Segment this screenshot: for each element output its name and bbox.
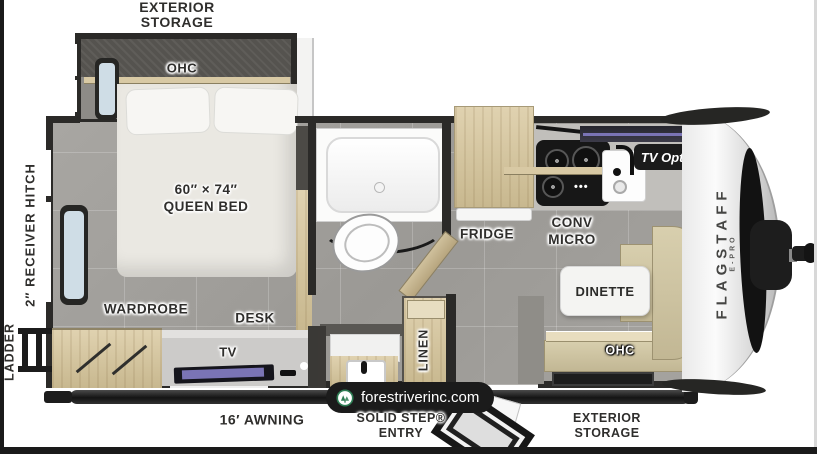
slideout-exterior-panel (297, 38, 314, 122)
tv-remote (280, 370, 296, 376)
pillow-right (213, 87, 299, 136)
linen-label: LINEN (417, 329, 432, 372)
kitchen-wood-rail (504, 167, 616, 175)
cooktop-burner-3 (542, 176, 564, 198)
solid-step-entry-label: SOLID STEP® ENTRY (356, 411, 445, 441)
ohc-bed-label: OHC (167, 61, 197, 76)
fridge-label: FRIDGE (460, 227, 514, 242)
dinette-label: DINETTE (575, 284, 634, 299)
exterior-storage-top-label: EXTERIOR STORAGE (139, 0, 215, 30)
forest-river-logo-icon (336, 389, 354, 407)
solid-step-line1: SOLID STEP® (356, 411, 445, 426)
fridge-cabinet (454, 106, 534, 208)
conv-micro-line2: MICRO (548, 231, 596, 248)
brand-logo-sub: E-PRO (730, 186, 738, 319)
wardrobe-label: WARDROBE (104, 302, 188, 317)
vanity-side-wall (318, 326, 326, 388)
linen-cabinet-top (407, 300, 445, 319)
slideout-window-slot-2 (71, 80, 77, 112)
receiver-hitch-label: 2″ RECEIVER HITCH (23, 163, 38, 307)
bedroom-window-glass (99, 63, 115, 115)
dinette-bench-back (518, 296, 544, 384)
entry-partition-wall (446, 294, 456, 388)
pillow-left (125, 87, 211, 136)
ladder-rung-1 (22, 330, 28, 370)
exterior-storage-top-line2: STORAGE (139, 15, 215, 30)
conv-micro-label: CONV MICRO (548, 214, 596, 248)
frame-edge-bottom (0, 447, 817, 454)
conv-micro-line1: CONV (548, 214, 596, 231)
wardrobe-cabinet (52, 328, 162, 388)
front-window-accent (583, 133, 697, 136)
dinette-table: DINETTE (560, 266, 650, 316)
frame-edge-left (0, 0, 4, 447)
website-text: forestriverinc.com (361, 389, 479, 406)
ohc-dinette-label: OHC (605, 344, 634, 359)
ladder-rung-2 (36, 330, 42, 370)
awning-bracket-left (44, 391, 72, 403)
slideout-window-slot-1 (71, 44, 77, 76)
website-badge: forestriverinc.com (326, 382, 494, 413)
rear-wall-window-slot-1 (45, 150, 51, 196)
exterior-storage-top-line1: EXTERIOR (139, 0, 215, 15)
desk-label: DESK (235, 311, 275, 326)
sink-faucet-base (613, 168, 621, 176)
rear-wall-window-slot-2 (45, 202, 51, 302)
queen-bed-label: 60″ × 74″ QUEEN BED (164, 181, 249, 215)
brand-logo-text: FLAGSTAFF (715, 186, 730, 319)
ladder-label: LADDER (3, 323, 18, 381)
fridge-counter-ledge (456, 208, 532, 221)
hitch-housing (750, 220, 792, 290)
bathroom-left-wall (308, 123, 316, 295)
cooktop-knob-dots: ••• (574, 181, 589, 193)
tv-label: TV (219, 345, 237, 360)
brand-logo: FLAGSTAFF E-PRO (715, 186, 738, 319)
vanity-faucet (361, 361, 367, 374)
tv-opt-label: TV Opt. (641, 150, 687, 165)
exterior-storage-bottom-label: EXTERIOR STORAGE (573, 411, 641, 441)
bed-name-line: QUEEN BED (164, 198, 249, 215)
rear-window-glass (64, 211, 84, 299)
bed-size-line: 60″ × 74″ (164, 181, 249, 198)
sink-drain (613, 180, 627, 194)
bathroom-right-wall (442, 123, 451, 249)
exterior-storage-bottom-line1: EXTERIOR (573, 411, 641, 426)
floorplan-canvas: ••• TV Opt. DINETTE FLAGSTAFF E-PRO (0, 0, 817, 454)
awning-label: 16′ AWNING (220, 413, 305, 428)
solid-step-line2: ENTRY (356, 426, 445, 441)
exterior-storage-bottom-line2: STORAGE (573, 426, 641, 441)
desk-knob (300, 362, 308, 370)
dinette-window (552, 372, 654, 386)
